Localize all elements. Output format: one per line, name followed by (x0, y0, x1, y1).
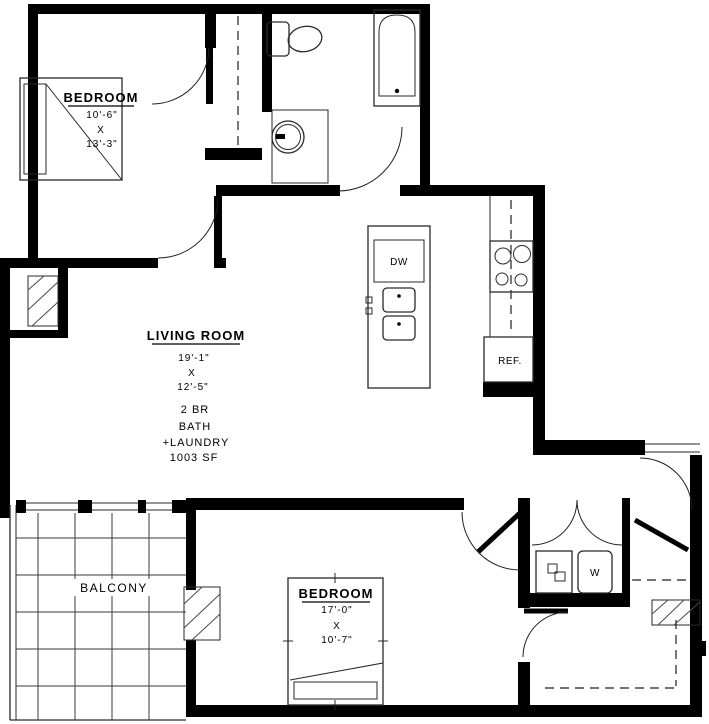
bedroom1-label: BEDROOM (64, 90, 139, 105)
bedroom1-width: 10'-6" (86, 110, 117, 121)
living-room-label: LIVING ROOM (147, 328, 245, 343)
refrigerator-label: REF. (498, 356, 522, 367)
door-leaf (206, 46, 213, 104)
bedroom1-length: 13'-3" (86, 139, 117, 150)
faucet (397, 322, 401, 326)
entry-door-arc (640, 458, 692, 510)
kitchen-island (368, 226, 430, 388)
bathtub-inner (379, 15, 415, 96)
faucet (397, 294, 401, 298)
door-arc (338, 127, 402, 191)
headboard (294, 682, 377, 699)
balcony-grid (16, 513, 186, 720)
washer-label: W (590, 568, 600, 579)
door-arc (523, 612, 568, 657)
bathroom (267, 10, 420, 183)
sink-basin (383, 316, 415, 340)
dishwasher-label: DW (390, 257, 408, 268)
bed-fold-line (290, 663, 383, 680)
door-arc (158, 198, 218, 258)
laundry (536, 551, 612, 593)
unit-laundry: +LAUNDRY (163, 437, 230, 449)
shaft (184, 587, 220, 640)
burner (495, 248, 511, 264)
bedroom2-label: BEDROOM (299, 586, 374, 601)
sink-basin (383, 288, 415, 312)
faucet (276, 134, 285, 139)
bedroom2-length: 10'-7" (321, 635, 352, 646)
unit-type: 2 BR (181, 404, 209, 416)
balcony (10, 500, 196, 720)
unit-area: 1003 SF (170, 452, 219, 464)
toilet-bowl (286, 23, 324, 55)
living-room-length: 12'-5" (177, 382, 208, 393)
closet-door-leaf (635, 520, 688, 550)
handle (366, 297, 372, 303)
bedroom1-by: X (97, 125, 105, 136)
floor-plan-drawing: BEDROOM 10'-6" X 13'-3" LIVING ROOM 19'-… (0, 0, 709, 724)
floor-plan: BEDROOM 10'-6" X 13'-3" LIVING ROOM 19'-… (0, 0, 709, 724)
door-arc (152, 48, 209, 104)
door-leaf (478, 513, 520, 552)
burner (514, 246, 531, 263)
burner (515, 274, 527, 286)
bedroom2-width: 17'-0" (321, 605, 352, 616)
drain (395, 89, 399, 93)
living-room-by: X (188, 368, 196, 379)
unit-bath: BATH (179, 421, 212, 433)
living-room-width: 19'-1" (178, 353, 209, 364)
handle (366, 308, 372, 314)
balcony-label: BALCONY (80, 581, 148, 595)
dryer (536, 551, 572, 593)
laundry-door-arc (577, 500, 622, 545)
bedroom2-by: X (333, 621, 341, 632)
shaft (28, 276, 58, 326)
burner (496, 273, 508, 285)
laundry-door-arc (532, 500, 577, 545)
